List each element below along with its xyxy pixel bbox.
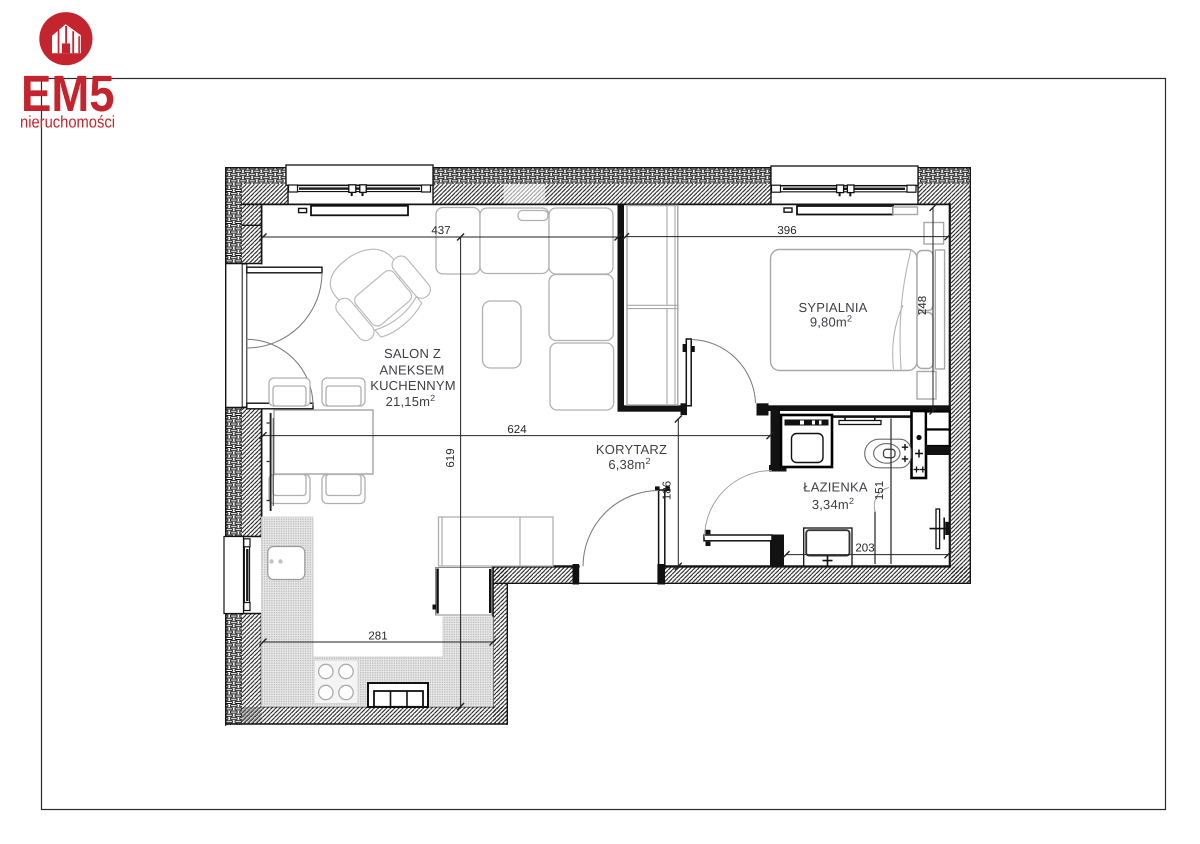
svg-text:203: 203 (855, 543, 874, 555)
svg-text:KORYTARZ: KORYTARZ (596, 442, 667, 457)
svg-text:396: 396 (777, 225, 796, 237)
svg-text:151: 151 (874, 481, 886, 500)
svg-text:21,15m2: 21,15m2 (386, 393, 436, 409)
svg-text:9,80m2: 9,80m2 (810, 314, 852, 330)
svg-text:6,38m2: 6,38m2 (608, 456, 650, 472)
svg-text:281: 281 (368, 631, 387, 643)
svg-text:437: 437 (431, 225, 450, 237)
svg-text:ANEKSEM: ANEKSEM (380, 362, 445, 377)
svg-text:KUCHENNYM: KUCHENNYM (370, 378, 456, 393)
svg-text:ŁAZIENKA: ŁAZIENKA (803, 479, 868, 494)
svg-text:SALON Z: SALON Z (384, 346, 441, 361)
svg-text:186: 186 (661, 481, 673, 500)
svg-text:3,34m2: 3,34m2 (812, 496, 854, 512)
svg-text:624: 624 (507, 424, 527, 436)
svg-text:nieruchomości: nieruchomości (20, 113, 115, 132)
svg-text:248: 248 (917, 296, 929, 315)
svg-text:619: 619 (445, 448, 457, 467)
svg-text:SYPIALNIA: SYPIALNIA (799, 300, 868, 315)
